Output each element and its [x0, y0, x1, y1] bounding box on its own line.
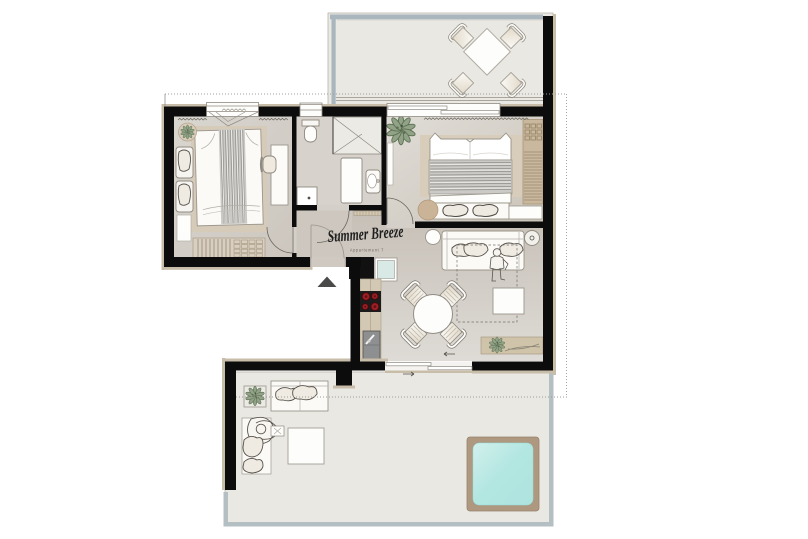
svg-text:Appartement 7: Appartement 7	[350, 248, 384, 254]
